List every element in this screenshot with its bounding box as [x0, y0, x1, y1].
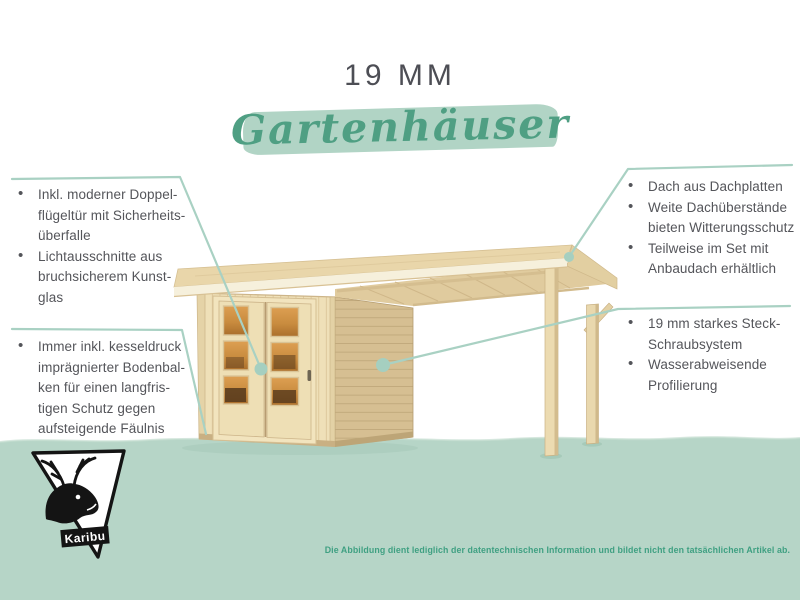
interior-shadow	[273, 390, 296, 403]
connector-dot-wall	[376, 358, 390, 372]
garden-house-illustration	[174, 245, 617, 456]
door-handle	[308, 370, 312, 381]
connector-dot-door	[255, 363, 268, 376]
corner-trim-left	[197, 293, 205, 439]
annex-posts	[545, 266, 599, 456]
side-wall	[335, 297, 413, 446]
interior-shadow	[225, 388, 246, 402]
corner-trim-right	[330, 297, 335, 446]
connector-roof	[569, 165, 792, 257]
product-info-page: Karibu 19 MM Gartenhäuser Inkl. moderner…	[0, 0, 800, 600]
connector-floor-beams	[12, 329, 206, 434]
connector-dot-roof	[564, 252, 574, 262]
interior-shadow	[274, 355, 296, 369]
interior-shadow	[226, 357, 244, 368]
illustration-layer: Karibu	[0, 0, 800, 600]
deer-eye	[76, 495, 81, 500]
